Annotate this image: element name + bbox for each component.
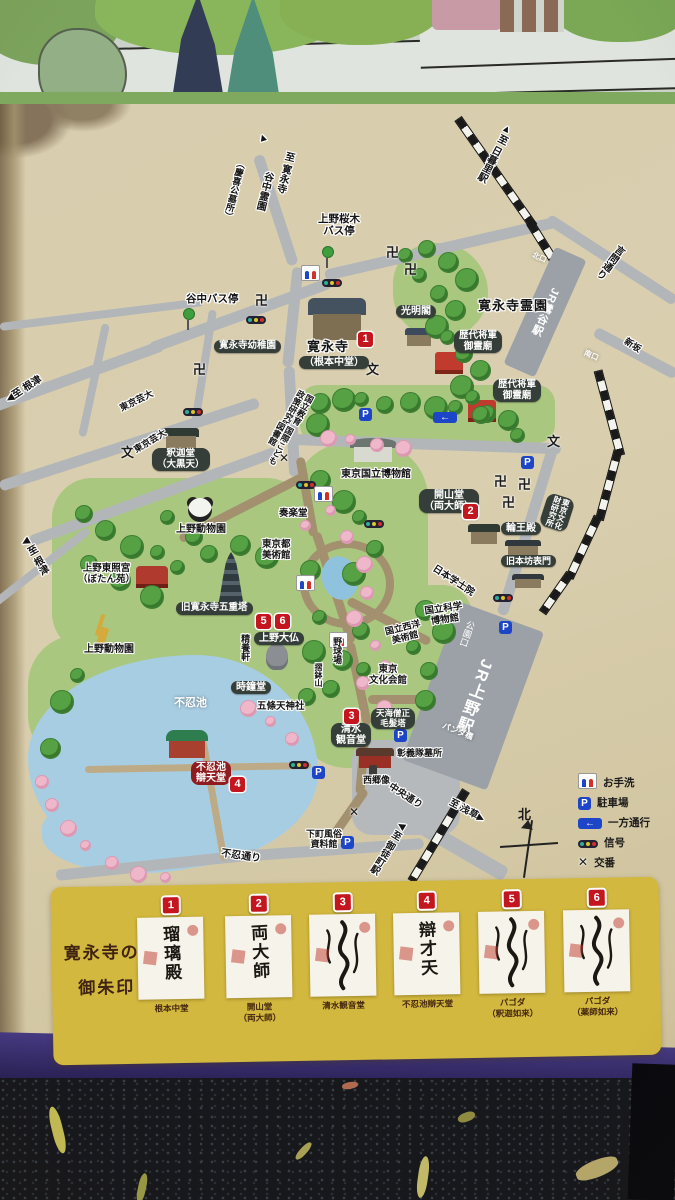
panda-icon <box>188 498 212 522</box>
toilet-icon-wrap <box>296 575 315 594</box>
cherry-blossom-icon <box>340 530 354 544</box>
goshuin-number-chip: 3 <box>333 892 353 912</box>
goshuin-red-seal <box>443 920 454 931</box>
map-label: 摺鉢山 <box>313 663 322 687</box>
map-label: 旧寛永寺五重塔 <box>176 602 253 615</box>
parking-icon-wrap: P <box>312 762 325 780</box>
goshuin-stamp-label: 開山堂 （両大師） <box>212 1001 308 1024</box>
goshuin-red-seal <box>484 945 498 959</box>
cherry-blossom-icon <box>370 438 384 452</box>
map-label: 南口 <box>583 349 600 363</box>
bus-stop-icon <box>183 308 193 330</box>
tree <box>420 662 438 680</box>
goshuin-calligraphy: 辯才天 <box>413 920 441 978</box>
manji-icon-wrap: 卍 <box>494 471 507 491</box>
cherry-blossom-icon <box>160 872 171 883</box>
tree <box>75 505 93 523</box>
goshuin-calligraphy: 瑠璃殿 <box>157 925 185 983</box>
tree <box>160 510 175 525</box>
tree <box>50 690 74 714</box>
traffic-signal-icon <box>289 761 309 769</box>
tree <box>472 406 490 424</box>
tree <box>230 535 251 556</box>
parking-icon-wrap: P <box>499 617 512 635</box>
manji-icon-wrap: 卍 <box>404 259 417 279</box>
map-label: 西郷像 <box>363 775 390 785</box>
legend-label: 一方通行 <box>608 815 650 830</box>
manji-temple-icon: 卍 <box>494 474 507 489</box>
map-label: 至 寛永寺 <box>274 150 295 194</box>
map-label: 上野動物園 <box>84 644 134 655</box>
map-legend: お手洗 P駐車場 ←一方通行 信号 ✕交番 <box>578 772 650 872</box>
parking-icon: P <box>341 836 354 849</box>
parking-icon: P <box>578 797 591 810</box>
tree <box>40 738 61 759</box>
legend-row-signal: 信号 <box>578 832 650 852</box>
manji-temple-icon: 卍 <box>404 262 417 277</box>
legend-row-oneway: ←一方通行 <box>578 812 650 832</box>
busstop-icon-wrap <box>322 246 332 273</box>
tree <box>120 535 144 559</box>
map-label: 谷中バス停 <box>186 294 239 306</box>
goshuin-red-seal <box>231 949 245 963</box>
goshuin-number-chip: 2 <box>249 894 269 914</box>
map-label: 東京 文化会館 <box>369 665 407 686</box>
great-buddha-face-icon <box>266 644 288 670</box>
map-label: 東京国立博物館 <box>341 469 411 480</box>
tree <box>440 330 455 345</box>
goshuin-stamp-card <box>478 911 545 994</box>
cherry-blossom-icon <box>395 440 412 457</box>
cherry-blossom-icon <box>130 866 147 883</box>
signal-icon-wrap <box>246 309 266 327</box>
tree <box>510 428 525 443</box>
tree <box>312 610 327 625</box>
tree <box>455 268 479 292</box>
tree <box>70 668 85 683</box>
signal-icon-wrap <box>289 754 309 772</box>
manji-temple-icon: 卍 <box>502 495 515 510</box>
map-label: 東京芸大 <box>118 388 155 413</box>
map-label: 寛永寺 <box>307 340 349 355</box>
map-label: 五條天神社 <box>257 702 305 713</box>
numbered-spot-6: 6 <box>275 614 290 629</box>
map-label: 上野桜木 バス停 <box>318 214 360 238</box>
traffic-signal-icon <box>364 520 384 528</box>
traffic-signal-icon <box>296 481 316 489</box>
goshuin-stamp-label: 不忍池辯天堂 <box>380 998 476 1010</box>
map-label: 上野東照宮 （ぼたん苑） <box>78 564 135 585</box>
toilet-icon <box>301 265 320 281</box>
one-way-icon: ← <box>578 813 602 831</box>
traffic-signal-icon <box>322 279 342 287</box>
fallen-leaf <box>457 1110 477 1125</box>
rinnoden-building-icon <box>505 540 541 556</box>
cherry-blossom-icon <box>346 610 363 627</box>
tree <box>465 390 480 405</box>
traffic-signal-icon <box>183 408 203 416</box>
tree <box>415 690 436 711</box>
goshuin-stamp-card <box>309 914 376 997</box>
map-label: 天海僧正 毛髪塔 <box>371 708 415 729</box>
map-label: 時鐘堂 <box>231 681 271 694</box>
cherry-blossom-icon <box>80 840 91 851</box>
legend-row-toilet: お手洗 <box>578 772 650 792</box>
tree <box>170 560 185 575</box>
cherry-blossom-icon <box>45 798 59 812</box>
tree <box>400 392 421 413</box>
ground-asphalt <box>0 1078 675 1200</box>
signal-icon-wrap <box>364 513 384 531</box>
manji-temple-icon: 卍 <box>255 293 268 308</box>
shakado-building-icon <box>163 428 199 450</box>
parking-icon: P <box>499 621 512 634</box>
map-label: 旧本坊表門 <box>501 555 556 567</box>
parking-icon-wrap: P <box>521 452 534 470</box>
parking-icon-wrap: P <box>341 832 354 850</box>
kyuhonbo-gate-icon <box>512 574 544 588</box>
manji-icon-wrap: 卍 <box>386 242 399 262</box>
goshuin-stamp-label: 根本中堂 <box>124 1002 220 1014</box>
map-label: 東京文化 財研究所 <box>538 492 575 533</box>
parking-icon: P <box>394 729 407 742</box>
legend-label: お手洗 <box>603 775 635 790</box>
toilet-icon <box>314 486 333 502</box>
map-label: 寛永寺幼稚園 <box>214 340 281 353</box>
goshuin-stamp-label: 清水観音堂 <box>296 999 392 1011</box>
railway-jr <box>595 449 622 521</box>
numbered-spot-1: 1 <box>358 332 373 347</box>
goshuin-stamp-label: パゴダ （釈迦如来） <box>464 996 560 1019</box>
parking-icon: P <box>359 408 372 421</box>
toilet-icon-wrap <box>301 265 320 284</box>
photo-of-map-signboard: JR鶯谷駅 公園口 JR上野駅 お手洗 P駐車場 ←一方通 <box>0 0 675 1200</box>
cherry-blossom-icon <box>240 700 257 717</box>
cherry-blossom-icon <box>356 676 370 690</box>
map-label: （根本中堂） <box>299 356 369 369</box>
map-label: 歴代将軍 御霊廟 <box>454 330 502 353</box>
map-label: 下町風俗 資料館 <box>306 829 342 849</box>
goshuin-stamp-card: 瑠璃殿 <box>137 917 204 1000</box>
traffic-signal-icon <box>246 316 266 324</box>
busstop-icon-wrap <box>183 308 193 335</box>
manji-icon-wrap: 卍 <box>193 359 206 379</box>
legend-label: 駐車場 <box>597 795 629 810</box>
goshuin-red-seal <box>569 943 583 957</box>
signal-icon-wrap <box>322 272 342 290</box>
toilet-icon <box>578 773 597 789</box>
tree <box>332 388 356 412</box>
school-icon: 文 <box>547 434 560 449</box>
cherry-blossom-icon <box>265 716 276 727</box>
goshuin-number-chip: 1 <box>161 895 181 915</box>
manji-icon-wrap: 卍 <box>518 474 531 494</box>
numbered-spot-5: 5 <box>256 614 271 629</box>
goshuin-number-chip: 6 <box>587 888 607 908</box>
fallen-leaf <box>573 1152 620 1184</box>
tree <box>430 285 448 303</box>
goshuin-red-seal <box>315 948 329 962</box>
goshuin-calligraphy: 両大師 <box>245 923 273 981</box>
goshuin-red-seal <box>187 925 198 936</box>
traffic-signal-icon <box>578 840 598 848</box>
goshuin-number-chip: 5 <box>502 889 522 909</box>
map-label: 歴代将軍 御霊廟 <box>493 379 541 402</box>
legend-label: 信号 <box>604 835 625 850</box>
map-label: 清水 観音堂 <box>331 723 371 747</box>
numbered-spot-2: 2 <box>463 504 478 519</box>
goshuin-stamp-card: 両大師 <box>225 915 292 998</box>
compass-north: 北 <box>498 804 568 884</box>
railway-jr <box>539 571 574 615</box>
tree <box>418 240 436 258</box>
kaisando-building-icon <box>468 524 500 544</box>
map-label: 精養軒 <box>240 634 250 661</box>
cherry-blossom-icon <box>60 820 77 837</box>
goshuin-red-seal <box>399 946 413 960</box>
signal-icon-wrap <box>183 401 203 419</box>
legend-row-parking: P駐車場 <box>578 792 650 812</box>
manji-temple-icon: 卍 <box>518 477 531 492</box>
goshuin-stamp-card: 辯才天 <box>393 912 460 995</box>
numbered-spot-4: 4 <box>230 777 245 792</box>
manji-icon-wrap: 卍 <box>502 492 515 512</box>
manji-temple-icon: 卍 <box>386 245 399 260</box>
numbered-spot-3: 3 <box>344 709 359 724</box>
toilet-icon-wrap <box>314 486 333 505</box>
map-label: 不忍池 <box>174 697 207 709</box>
goshuin-stamp-label: パゴダ （薬師如来） <box>549 995 645 1018</box>
compass-arrow-icon <box>521 813 535 830</box>
toilet-icon <box>296 575 315 591</box>
cherry-blossom-icon <box>285 732 299 746</box>
signal-icon-wrap <box>296 474 316 492</box>
legend-row-koban: ✕交番 <box>578 852 650 872</box>
tree <box>376 396 394 414</box>
cherry-blossom-icon <box>356 556 373 573</box>
legend-label: 交番 <box>594 855 615 870</box>
cherry-blossom-icon <box>370 640 381 651</box>
goshuin-red-seal <box>143 951 157 965</box>
tree <box>366 540 384 558</box>
parking-icon: P <box>521 456 534 469</box>
tree <box>302 640 326 664</box>
tree <box>322 680 340 698</box>
map-label: ▲ <box>256 131 270 146</box>
one-way-icon: ← <box>578 818 602 829</box>
cherry-blossom-icon <box>345 434 356 445</box>
manji-icon-wrap: 卍 <box>255 290 268 310</box>
railway-jr <box>565 515 602 580</box>
tree <box>438 252 459 273</box>
goshuin-red-seal <box>275 923 286 934</box>
map-label: 野球場 <box>332 637 342 664</box>
cherry-blossom-icon <box>300 520 311 531</box>
fallen-leaf <box>135 1172 149 1200</box>
oneway-icon-wrap: ← <box>433 407 457 425</box>
map-label: 上野大仏 <box>254 632 304 645</box>
map-label: 上野動物園 <box>176 524 226 535</box>
map-label: 光明閣 <box>396 305 436 318</box>
map-label: 寛永寺霊園 <box>478 299 548 314</box>
cherry-blossom-icon <box>35 775 49 789</box>
tree <box>150 545 165 560</box>
fallen-leaf <box>294 1140 314 1161</box>
one-way-icon: ← <box>433 412 457 423</box>
parking-icon: P <box>312 766 325 779</box>
map-label: 奏楽堂 <box>279 509 308 520</box>
tree <box>470 360 491 381</box>
tree <box>445 300 466 321</box>
map-label: 釈迦堂 （大黒天） <box>152 448 210 471</box>
police-box-icon: ✕ <box>349 805 359 819</box>
goshuin-panel-title: 寛永寺の 御朱印 <box>63 938 140 999</box>
fallen-leaf <box>46 1105 68 1154</box>
parking-icon-wrap: P <box>359 404 372 422</box>
parking-icon: P <box>578 793 591 811</box>
tree <box>406 640 421 655</box>
goshuin-stamp-card <box>563 909 630 992</box>
map-label: （慶喜公墓所） <box>222 158 247 222</box>
railway-jr <box>594 369 625 456</box>
fallen-leaf <box>342 1081 359 1091</box>
fallen-leaf <box>415 1156 431 1199</box>
traffic-signal-icon <box>493 594 513 602</box>
goshuin-title-line1: 寛永寺の <box>63 943 139 963</box>
map-label: 輪王殿 <box>501 522 541 535</box>
map-label: 不忍池 辯天堂 <box>191 761 231 785</box>
bus-stop-icon <box>322 246 332 268</box>
police-box-icon: ✕ <box>578 853 588 871</box>
toilet-icon <box>578 773 597 792</box>
road-shinzaka <box>592 327 675 380</box>
tree <box>140 585 164 609</box>
map-label: 東京都 美術館 <box>262 540 291 561</box>
goshuin-title-line2: 御朱印 <box>78 973 140 999</box>
signal-icon-wrap <box>493 587 513 605</box>
police-box-icon: ✕ <box>578 855 588 869</box>
koban-icon-wrap: ✕ <box>349 803 359 821</box>
cherry-blossom-icon <box>325 505 336 516</box>
school-icon-wrap: 文 <box>547 431 560 451</box>
tree <box>200 545 218 563</box>
traffic-signal-icon <box>578 833 598 851</box>
map-label: 彰義隊墓所 <box>397 748 442 758</box>
cherry-blossom-icon <box>320 430 337 447</box>
goshuin-number-chip: 4 <box>417 891 437 911</box>
dark-post <box>628 1063 675 1200</box>
manji-temple-icon: 卍 <box>193 362 206 377</box>
cherry-blossom-icon <box>360 586 374 600</box>
tree <box>95 520 116 541</box>
bentendo-shrine-icon <box>166 730 208 758</box>
goshuin-panel: 寛永寺の 御朱印 1瑠璃殿根本中堂2両大師開山堂 （両大師）3清水観音堂4辯才天… <box>50 877 661 1066</box>
railway-jr <box>454 116 537 229</box>
cherry-blossom-icon <box>105 856 119 870</box>
